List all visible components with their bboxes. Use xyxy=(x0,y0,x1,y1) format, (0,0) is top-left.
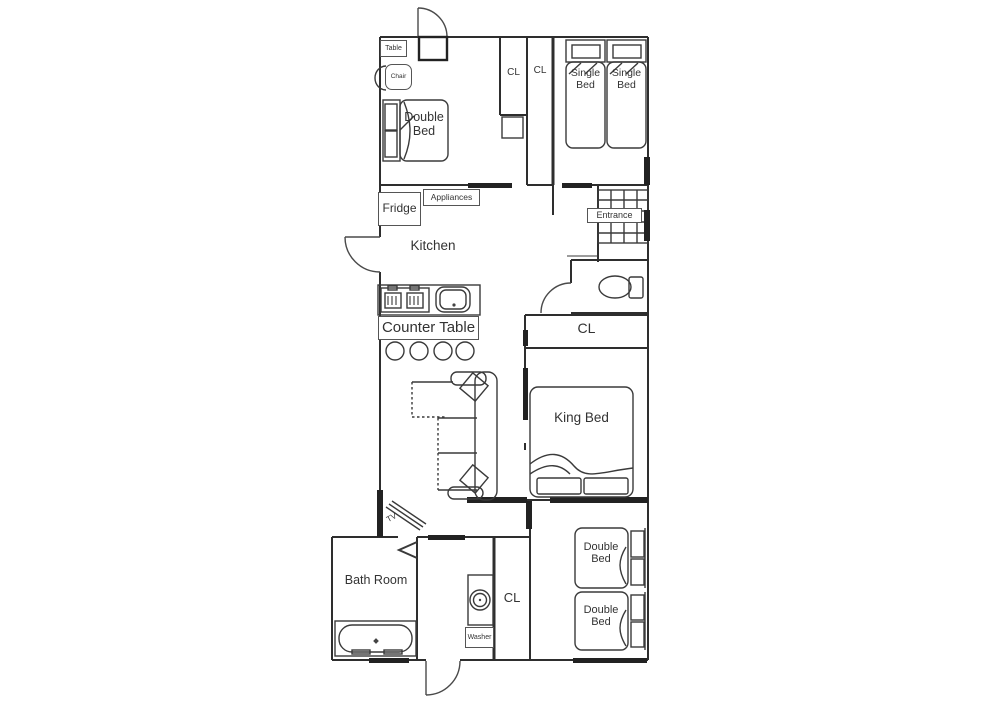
appliances-label: Appliances xyxy=(423,189,480,206)
single-bed-left-label: Single Bed xyxy=(565,68,606,92)
single-bed-right-icon xyxy=(607,40,646,148)
fridge-label: Fridge xyxy=(378,192,421,226)
door-laundry-swing xyxy=(426,661,460,695)
double-bed-top-label: Double Bed xyxy=(399,110,449,138)
kitchen-counter-icon xyxy=(378,285,480,315)
door-bath-bifold xyxy=(399,542,417,558)
single-bed-right-label: Single Bed xyxy=(606,68,647,92)
washer-icon xyxy=(468,575,493,625)
double-bed-bottom-upper-label: Double Bed xyxy=(574,541,628,566)
bathtub-icon xyxy=(335,621,416,656)
closet-top-right-label: CL xyxy=(527,65,553,76)
closet-laundry-label: CL xyxy=(494,591,530,606)
toilet-icon xyxy=(599,276,643,298)
entrance-front-door-bar xyxy=(644,210,650,241)
closet-hall-label: CL xyxy=(525,321,648,337)
double-bed-bottom-lower-label: Double Bed xyxy=(574,604,628,629)
washer-label: Washer xyxy=(465,627,494,648)
king-bed-label: King Bed xyxy=(530,410,633,425)
counter-stools-icon xyxy=(386,342,474,360)
chair-label: Chair xyxy=(385,64,412,90)
floorplan-canvas: Table Chair Double Bed CL CL Single Bed … xyxy=(0,0,1000,707)
door-kitchen-swing xyxy=(345,237,380,272)
entrance-label: Entrance xyxy=(587,208,642,223)
kitchen-label: Kitchen xyxy=(396,238,470,253)
king-bed-icon xyxy=(530,387,633,497)
single-bed-left-icon xyxy=(566,40,605,148)
table-label: Table xyxy=(380,40,407,57)
counter-table-label: Counter Table xyxy=(378,316,479,340)
sofa-icon xyxy=(412,372,497,500)
door-toilet-swing xyxy=(541,283,571,313)
bath-room-label: Bath Room xyxy=(335,573,417,587)
door-top-swing xyxy=(418,8,447,60)
closet-top-left-label: CL xyxy=(500,67,527,78)
